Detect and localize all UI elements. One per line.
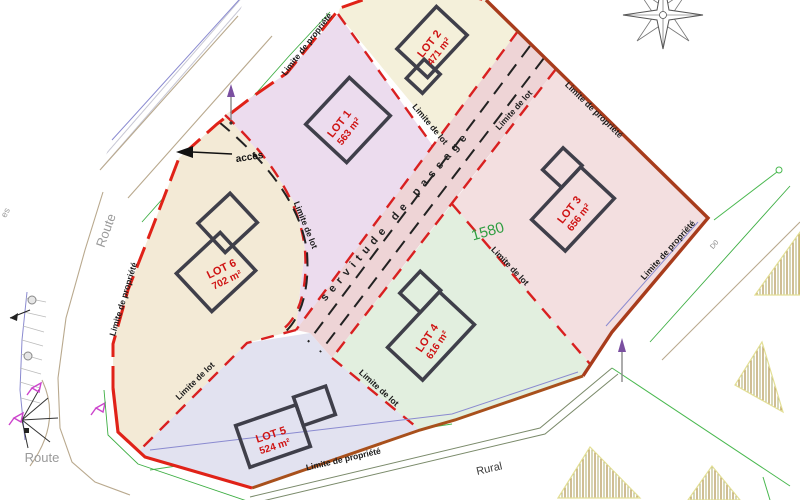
hatched-triangle bbox=[755, 232, 800, 295]
hatched-triangle bbox=[688, 466, 740, 500]
site-plan-drawing: LOT 1563 m² LOT 2471 m² LOT 3656 m² LOT … bbox=[0, 0, 800, 500]
survey-point bbox=[24, 352, 32, 360]
route-label: Route bbox=[25, 450, 60, 465]
survey-marker bbox=[24, 428, 29, 433]
road-name-fragment: es bbox=[0, 206, 12, 220]
hatched-triangle bbox=[558, 447, 640, 498]
hatched-triangle bbox=[735, 342, 783, 412]
rural-label: Rural bbox=[475, 460, 503, 478]
survey-point bbox=[776, 167, 782, 173]
route-label: Route bbox=[93, 212, 119, 250]
north-marker-icon bbox=[618, 338, 626, 382]
compass-rose-icon bbox=[623, 0, 703, 49]
site-plan: LOT 1563 m² LOT 2471 m² LOT 3656 m² LOT … bbox=[0, 0, 800, 500]
utility-symbol bbox=[91, 403, 105, 415]
survey-point bbox=[28, 296, 36, 304]
road-code-label: D0 bbox=[709, 239, 720, 250]
utility-symbol bbox=[9, 413, 23, 425]
